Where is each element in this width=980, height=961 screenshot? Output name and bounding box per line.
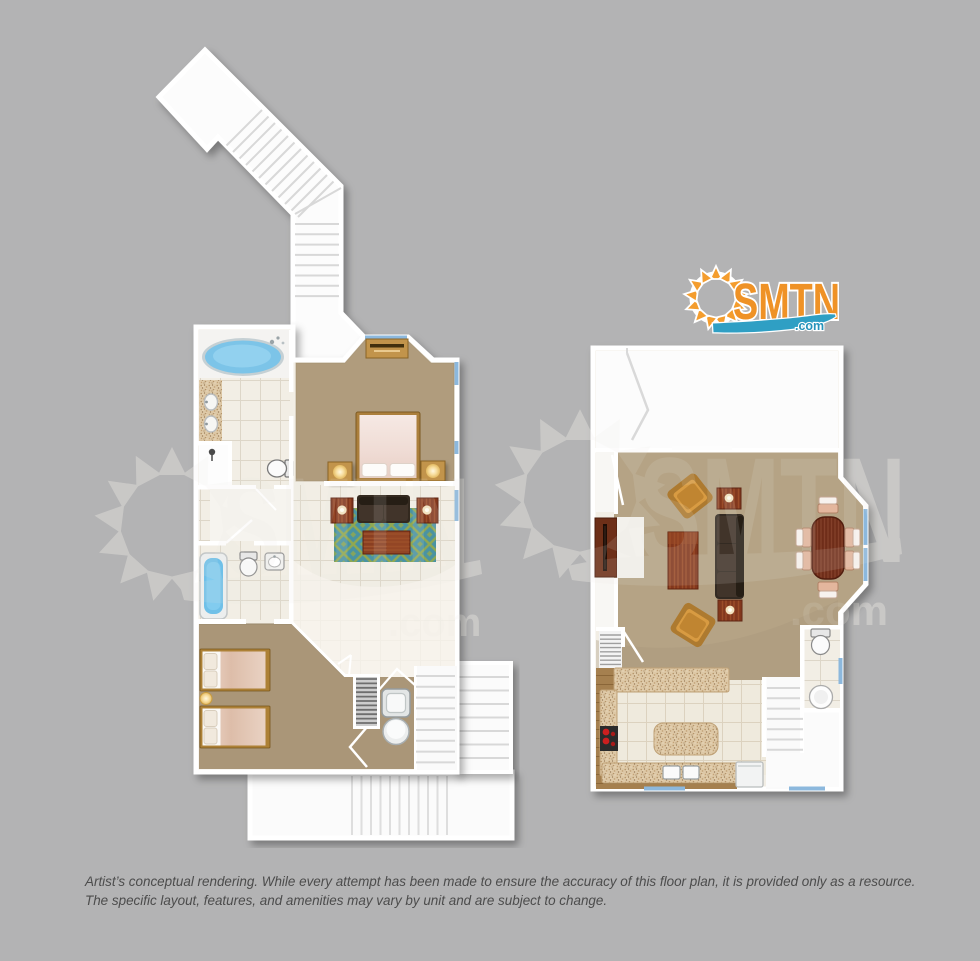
svg-text:.com: .com (388, 601, 481, 645)
svg-text:The specific layout, features,: The specific layout, features, and ameni… (85, 893, 607, 908)
svg-text:.com: .com (790, 587, 888, 634)
svg-text:.com: .com (795, 319, 824, 333)
svg-text:Artist’s conceptual rendering.: Artist’s conceptual rendering. While eve… (84, 874, 915, 889)
